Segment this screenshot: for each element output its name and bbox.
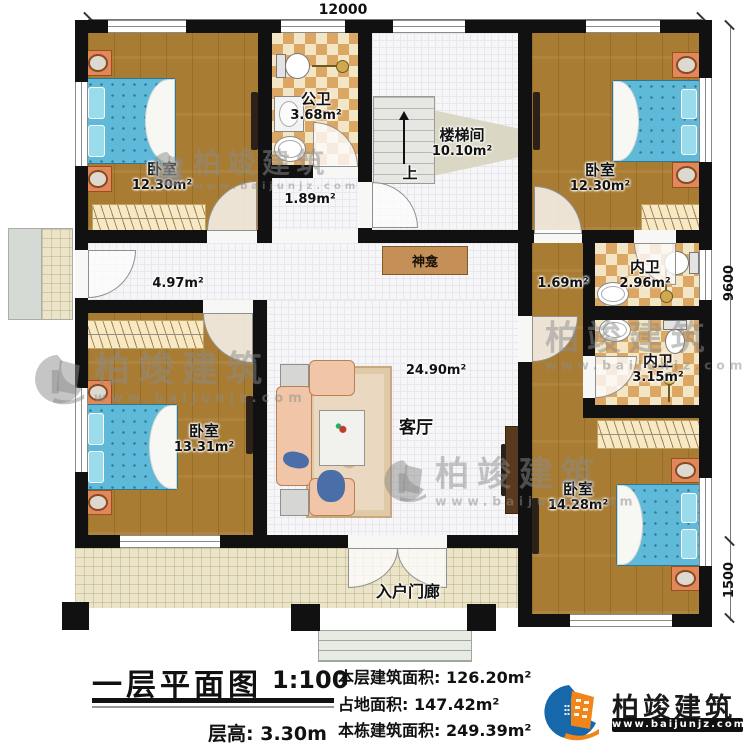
room-label-stairwell: 楼梯间 10.10m² — [432, 126, 492, 160]
shower-hose — [312, 65, 337, 67]
window — [75, 82, 88, 166]
room-label-ensuite-top: 内卫 2.96m² — [619, 258, 670, 292]
up-arrow-line — [403, 120, 405, 164]
wall — [75, 230, 712, 243]
dimension-depth: 9600 — [722, 261, 738, 305]
toilet — [276, 52, 310, 78]
pillow — [681, 125, 697, 155]
toilet-bowl — [665, 329, 685, 354]
window — [699, 250, 712, 300]
window — [586, 20, 660, 33]
entry-steps — [318, 630, 472, 662]
room-label-porch: 入户门廊 — [376, 582, 440, 601]
wardrobe — [641, 204, 701, 232]
door-opening — [75, 250, 88, 298]
title-underline-thin — [92, 706, 334, 708]
coffee-table — [319, 410, 365, 466]
wall — [258, 20, 272, 243]
wardrobe — [597, 420, 701, 449]
door-opening — [583, 356, 595, 398]
floor-plan-canvas: 12000 9600 1500 — [0, 0, 750, 751]
door-opening — [518, 316, 532, 362]
pillow — [88, 125, 105, 157]
person-figure — [317, 470, 345, 502]
wardrobe — [86, 320, 204, 349]
up-arrow-icon — [399, 111, 409, 120]
label-stairs-up: 上 — [402, 164, 417, 182]
pillow — [88, 413, 104, 445]
side-landing-tile — [41, 228, 73, 320]
nightstand — [671, 566, 700, 591]
shrine-label: 神龛 — [412, 251, 438, 270]
bed — [612, 80, 701, 162]
dimension-porch-depth: 1500 — [722, 558, 738, 602]
shrine-table: 神龛 — [382, 246, 468, 275]
sink — [599, 318, 631, 342]
tv — [533, 92, 540, 150]
brand-logo-icon — [538, 682, 604, 742]
shower-head-icon — [336, 60, 349, 73]
tv — [501, 444, 506, 496]
nightstand — [672, 52, 701, 78]
sink — [274, 136, 306, 162]
nightstand — [84, 166, 112, 192]
blanket-fold — [145, 79, 175, 163]
title-underline-thick — [92, 698, 334, 703]
side-landing-slab — [8, 228, 43, 320]
toilet — [662, 320, 688, 354]
toilet-bowl — [285, 53, 310, 79]
pillow — [681, 529, 697, 559]
area-label-corridor: 4.97m² — [152, 276, 203, 292]
window — [108, 20, 186, 33]
tv — [251, 92, 258, 150]
window — [699, 78, 712, 162]
nightstand — [84, 490, 112, 515]
door-opening — [203, 300, 253, 313]
area-label-junction: 1.69m² — [537, 276, 588, 292]
nightstand — [672, 162, 701, 188]
shower-head-icon — [660, 290, 673, 303]
pillow — [681, 89, 697, 119]
shower-hose — [668, 384, 670, 402]
area-label-living: 24.90m² — [406, 363, 466, 379]
stat-footprint-area: 占地面积: 147.42m² — [338, 691, 499, 715]
bed — [84, 404, 178, 490]
wall — [253, 300, 267, 548]
window — [281, 20, 345, 33]
pillow — [681, 493, 697, 523]
door-opening — [272, 230, 358, 243]
room-label-bedroom-tl: 卧室 12.30m² — [132, 160, 192, 194]
dimension-line-right — [730, 26, 731, 621]
door-opening — [348, 535, 447, 548]
stat-floor-area: 本层建筑面积: 126.20m² — [338, 664, 531, 688]
room-label-bedroom-tr: 卧室 12.30m² — [570, 161, 630, 195]
window — [699, 478, 712, 566]
tv — [532, 498, 539, 554]
drawing-scale: 1:100 — [272, 666, 348, 694]
pillow — [88, 451, 104, 483]
floor-height: 层高: 3.30m — [208, 719, 327, 746]
toilet-tank — [689, 252, 699, 274]
sofa — [276, 386, 312, 486]
area-label-lobby: 1.89m² — [284, 192, 335, 208]
blanket-fold — [149, 405, 177, 489]
nightstand — [671, 458, 700, 483]
blanket-fold — [613, 81, 639, 161]
room-label-bedroom-bl: 卧室 13.31m² — [174, 422, 234, 456]
window — [120, 535, 220, 548]
porch-column — [467, 604, 496, 631]
window — [570, 614, 672, 627]
wardrobe — [92, 204, 206, 232]
wall — [595, 306, 699, 320]
porch-column — [291, 604, 320, 631]
door-opening — [358, 182, 372, 228]
room-label-ensuite-bottom: 内卫 3.15m² — [632, 352, 683, 386]
room-label-living: 客厅 — [399, 418, 433, 438]
nightstand — [84, 380, 112, 405]
pillow — [88, 87, 105, 119]
tv — [246, 396, 253, 454]
side-table — [280, 489, 309, 516]
room-label-bedroom-br: 卧室 14.28m² — [548, 480, 608, 514]
wall — [583, 405, 699, 418]
window — [393, 20, 465, 33]
blanket-fold — [617, 485, 643, 565]
window — [75, 388, 88, 472]
bed — [84, 78, 176, 164]
nightstand — [84, 50, 112, 76]
stat-total-area: 本栋建筑面积: 249.39m² — [338, 717, 531, 741]
door-opening — [207, 230, 257, 243]
porch-column — [62, 602, 89, 630]
dimension-width: 12000 — [312, 2, 374, 18]
room-label-public-bath: 公卫 3.68m² — [290, 90, 341, 124]
bed — [616, 484, 701, 566]
brand-website: www.baijunjz.com — [612, 718, 743, 732]
armchair — [309, 360, 355, 396]
door-opening — [634, 230, 676, 243]
floor-entry-porch — [75, 548, 518, 608]
